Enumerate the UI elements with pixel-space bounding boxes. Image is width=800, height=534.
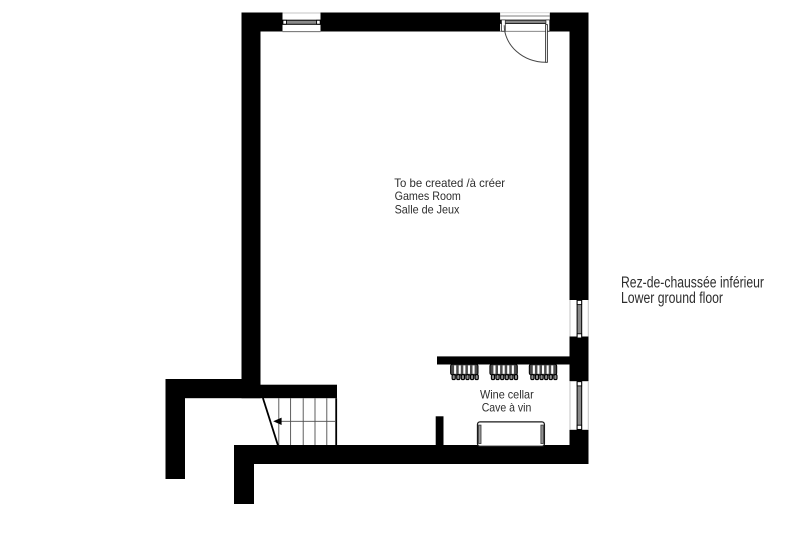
svg-text:Lower ground floor: Lower ground floor xyxy=(621,290,723,307)
svg-text:Games Room: Games Room xyxy=(395,189,461,203)
svg-text:Salle de Jeux: Salle de Jeux xyxy=(395,203,460,217)
svg-text:Cave à vin: Cave à vin xyxy=(482,401,532,415)
svg-text:Wine cellar: Wine cellar xyxy=(480,388,534,402)
svg-text:To be created /à créer: To be created /à créer xyxy=(394,176,505,190)
